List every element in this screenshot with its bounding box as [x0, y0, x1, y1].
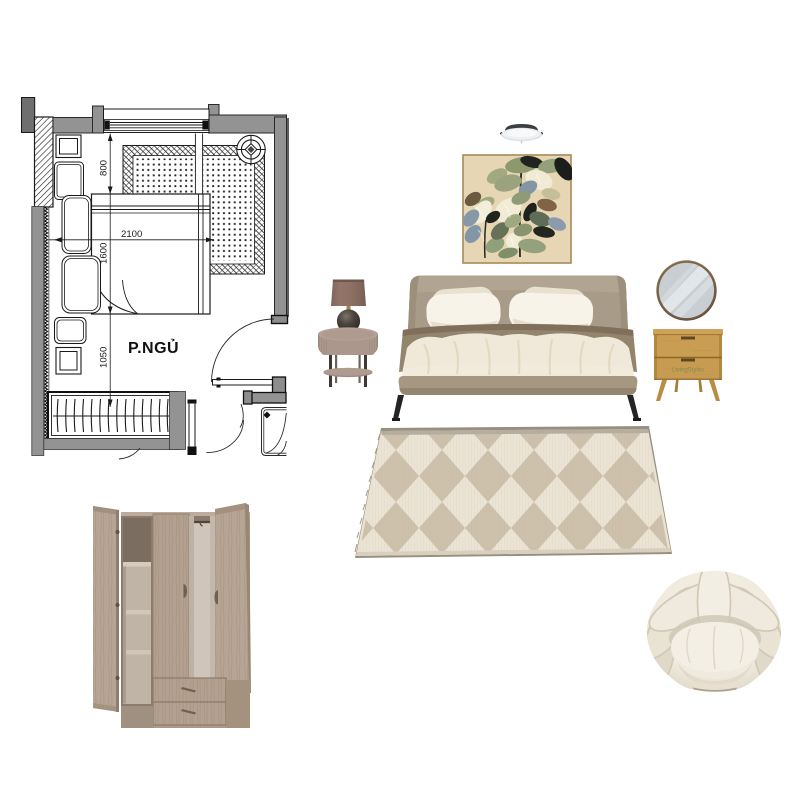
svg-text:1600: 1600	[99, 243, 110, 264]
svg-text:800: 800	[99, 160, 110, 176]
svg-text:LivingStyles: LivingStyles	[672, 368, 704, 374]
svg-text:2100: 2100	[121, 229, 142, 240]
svg-text:P.NGỦ: P.NGỦ	[128, 338, 179, 357]
svg-text:1050: 1050	[99, 347, 110, 368]
